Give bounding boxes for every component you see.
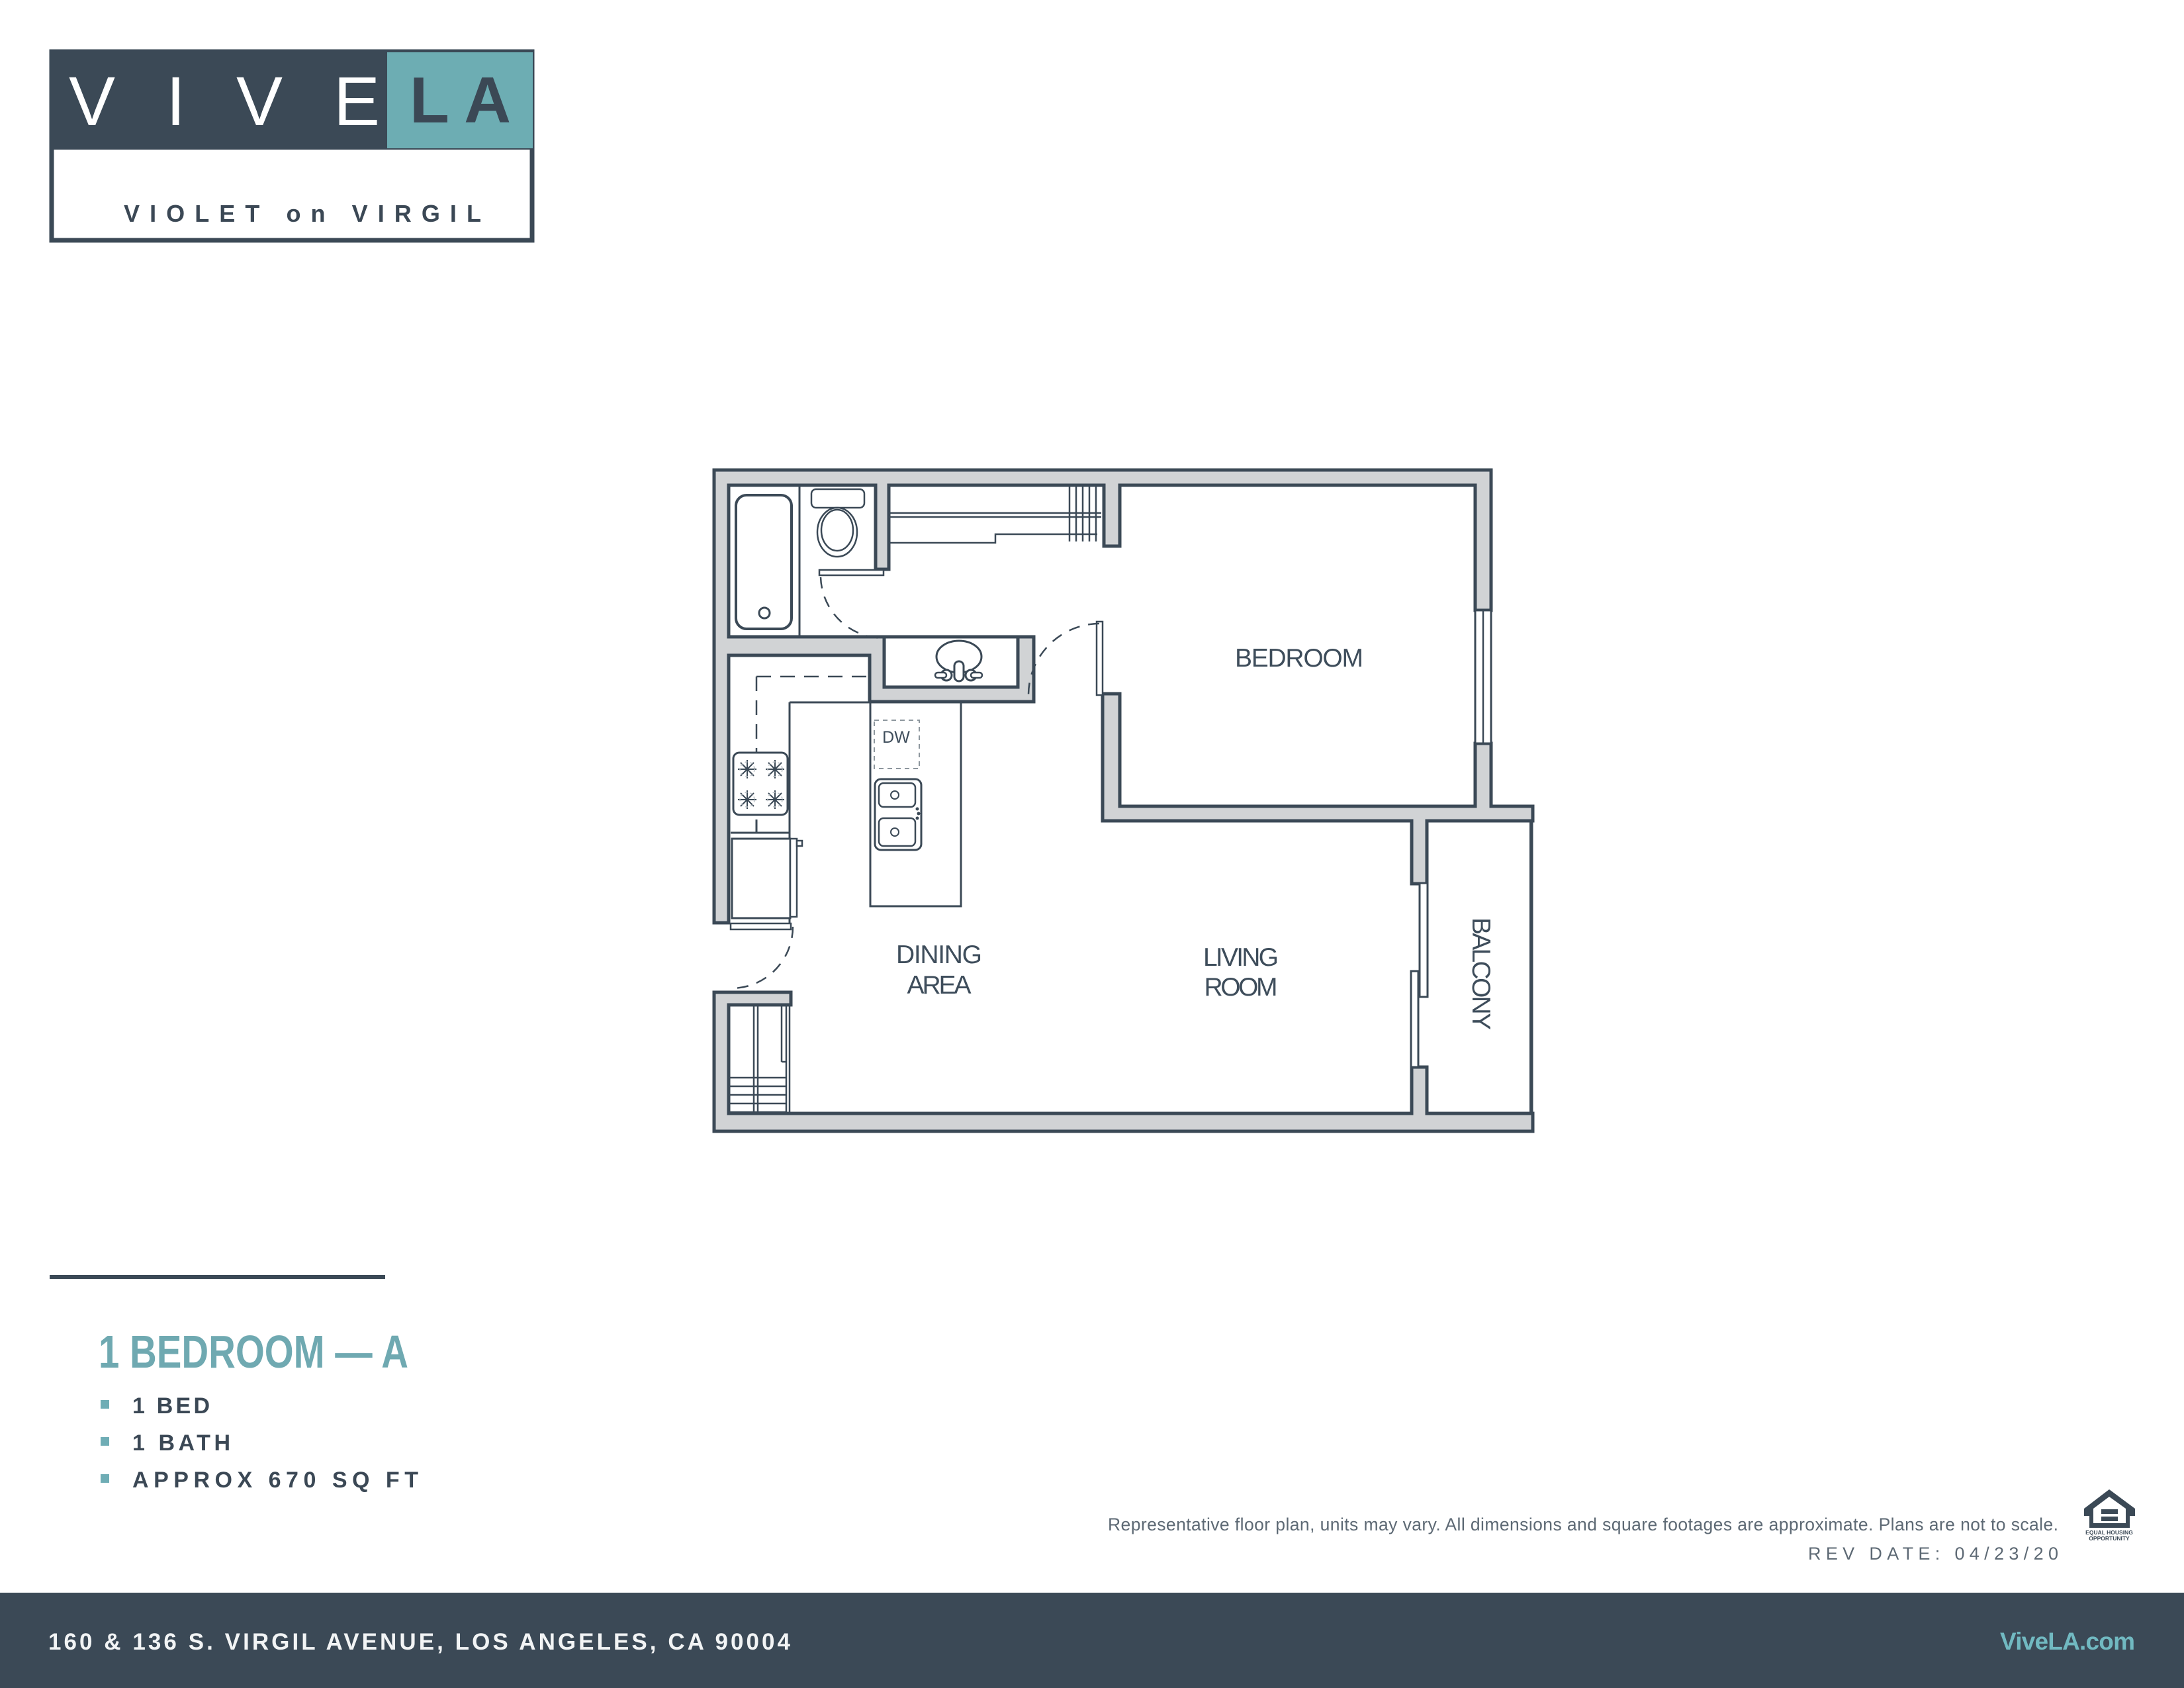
svg-text:ROOM: ROOM [1205, 973, 1278, 1002]
svg-text:1 BEDROOM — A: 1 BEDROOM — A [99, 1326, 408, 1378]
svg-text:ViveLA.com: ViveLA.com [2000, 1628, 2135, 1655]
svg-text:APPROX 670 SQ FT: APPROX 670 SQ FT [132, 1468, 418, 1493]
svg-text:DINING: DINING [896, 941, 982, 969]
svg-text:160 & 136 S. VIRGIL AVENUE, LO: 160 & 136 S. VIRGIL AVENUE, LOS ANGELES,… [48, 1629, 791, 1655]
svg-text:BALCONY: BALCONY [1467, 917, 1495, 1030]
svg-text:DW: DW [882, 728, 910, 747]
svg-text:Representative floor plan, uni: Representative floor plan, units may var… [1108, 1515, 2058, 1534]
svg-text:REV DATE: 04/23/20: REV DATE: 04/23/20 [1808, 1544, 2058, 1564]
svg-text:1 BATH: 1 BATH [132, 1430, 230, 1456]
svg-text:LIVING: LIVING [1203, 943, 1279, 972]
svg-text:BEDROOM: BEDROOM [1235, 644, 1363, 673]
svg-text:AREA: AREA [907, 971, 972, 1000]
svg-text:1 BED: 1 BED [132, 1393, 210, 1419]
svg-text:OPPORTUNITY: OPPORTUNITY [2089, 1535, 2130, 1542]
